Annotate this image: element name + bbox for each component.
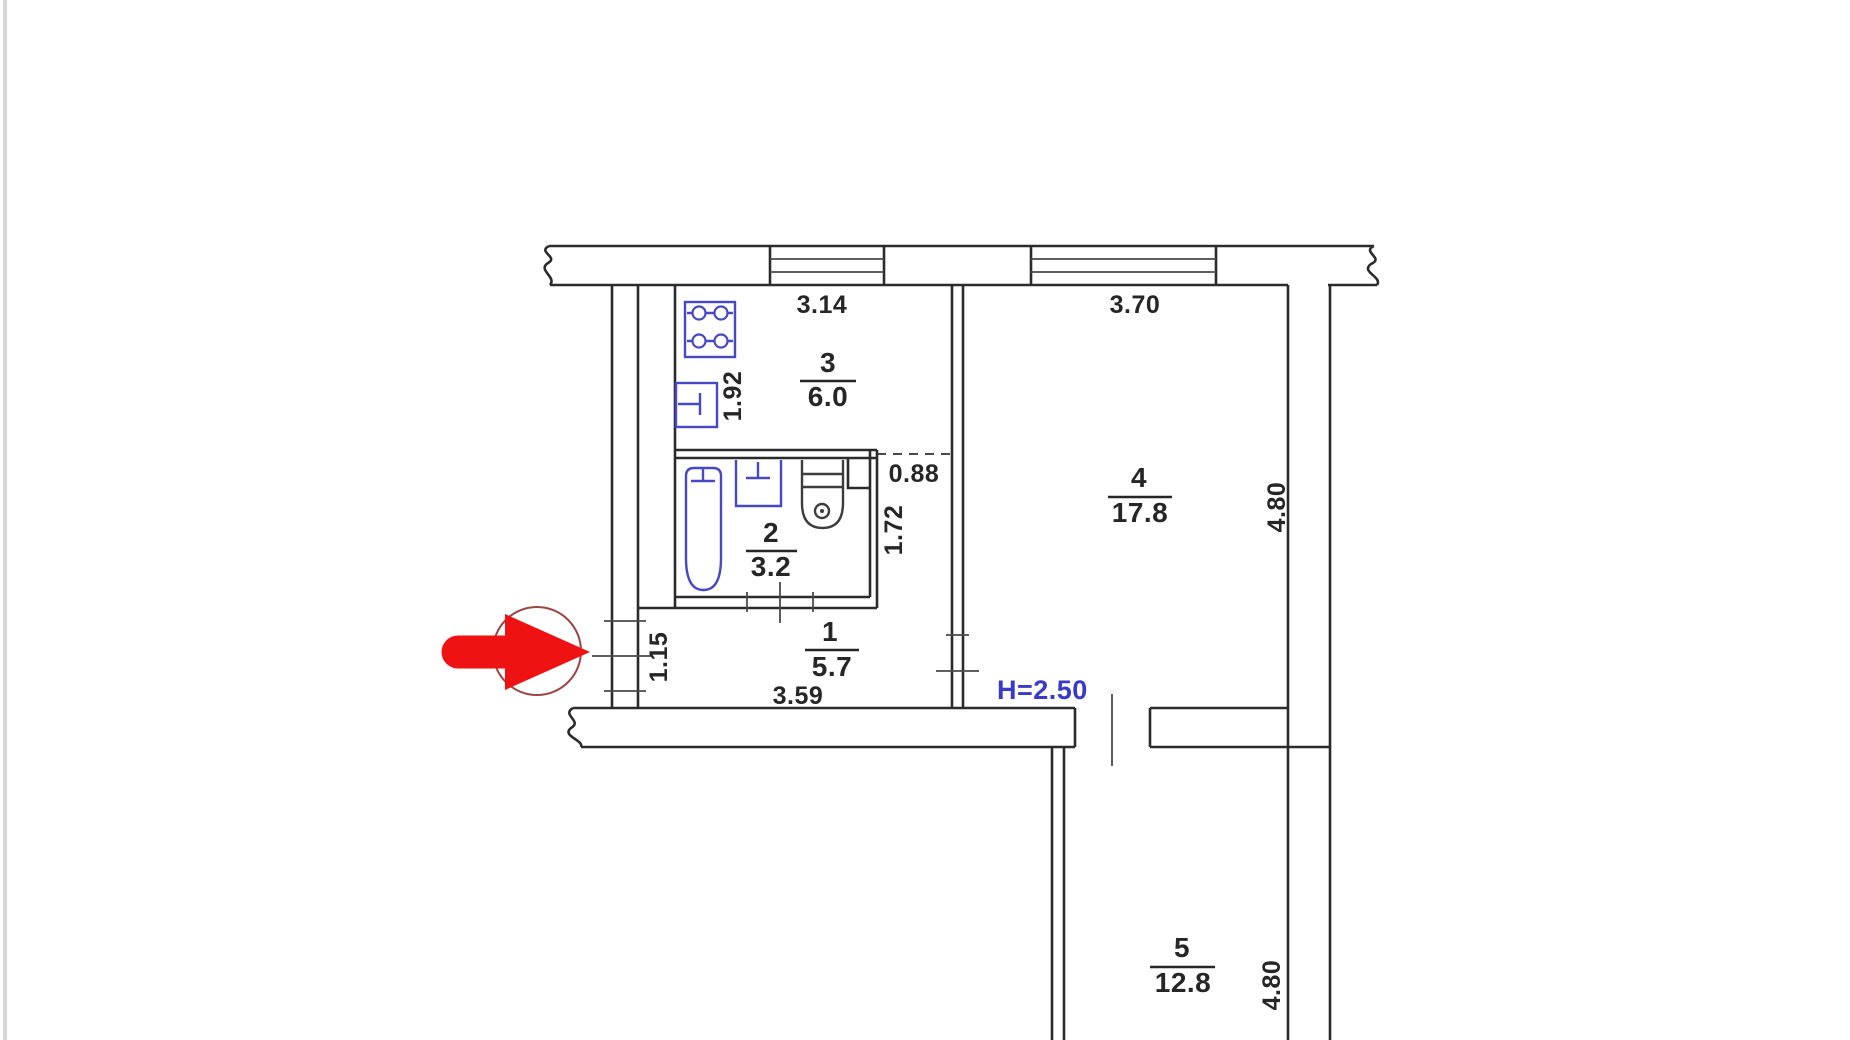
wall-break-right: [1368, 246, 1378, 285]
living-room-window-icon: [1031, 246, 1216, 285]
living-room-area: 17.8: [1112, 497, 1169, 528]
room-label-living-room: 4 17.8: [1108, 462, 1172, 528]
dim-living-width: 3.70: [1110, 291, 1161, 319]
bathtub-icon: [686, 468, 721, 590]
wall-break-left: [545, 246, 552, 285]
ceiling-height-note: H=2.50: [997, 675, 1088, 705]
dim-room5-depth: 4.80: [1258, 960, 1286, 1011]
page-edge-line: [3, 0, 7, 1040]
kitchen-area: 6.0: [808, 381, 848, 412]
bathroom-area: 3.2: [751, 551, 791, 582]
hallway-area: 5.7: [812, 651, 852, 682]
floor-plan-canvas: 3 6.0 2 3.2 1 5.7 4 17.8 5 12.8 3.14 3.: [0, 0, 1850, 1040]
dim-hallway-width: 3.59: [773, 682, 824, 710]
room5-number: 5: [1174, 932, 1190, 963]
entrance-arrow-icon: [505, 614, 590, 690]
room5-area: 12.8: [1155, 967, 1212, 998]
wall-break-bottom-left: [568, 708, 581, 747]
toilet-icon: [802, 460, 843, 528]
room-label-hallway: 1 5.7: [805, 616, 859, 682]
room-label-bathroom: 2 3.2: [746, 517, 797, 582]
dimension-labels: 3.14 3.70 1.92 0.88 1.72 1.15 3.59 4.80 …: [645, 291, 1291, 1010]
room-label-room5: 5 12.8: [1150, 932, 1215, 998]
kitchen-sink-icon: [676, 383, 717, 427]
living-room-number: 4: [1131, 462, 1147, 493]
kitchen-window-icon: [770, 246, 884, 285]
dim-kitchen-width: 3.14: [797, 291, 848, 319]
stove-icon: [685, 302, 735, 357]
dim-bathroom-depth: 1.72: [880, 505, 908, 556]
bathroom-sink-icon: [736, 460, 781, 506]
kitchen-number: 3: [820, 347, 836, 378]
floor-plan-page: 3 6.0 2 3.2 1 5.7 4 17.8 5 12.8 3.14 3.: [0, 0, 1850, 1040]
room-label-kitchen: 3 6.0: [800, 347, 856, 412]
dim-kitchen-depth: 1.92: [719, 371, 747, 422]
entrance-marker: [458, 607, 590, 695]
dim-living-depth: 4.80: [1263, 482, 1291, 533]
dim-entry-width: 1.15: [645, 632, 673, 683]
dim-niche-width: 0.88: [889, 460, 940, 488]
hallway-number: 1: [822, 616, 838, 647]
bathroom-number: 2: [763, 517, 779, 548]
